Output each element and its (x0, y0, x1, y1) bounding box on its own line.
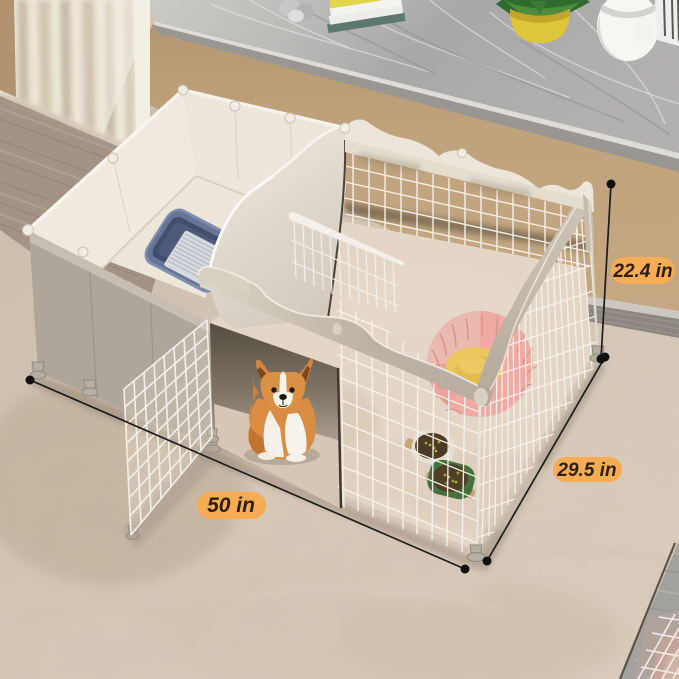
svg-text:22.4 in: 22.4 in (612, 261, 672, 282)
svg-text:29.5 in: 29.5 in (556, 460, 616, 481)
svg-text:50 in: 50 in (207, 494, 255, 517)
